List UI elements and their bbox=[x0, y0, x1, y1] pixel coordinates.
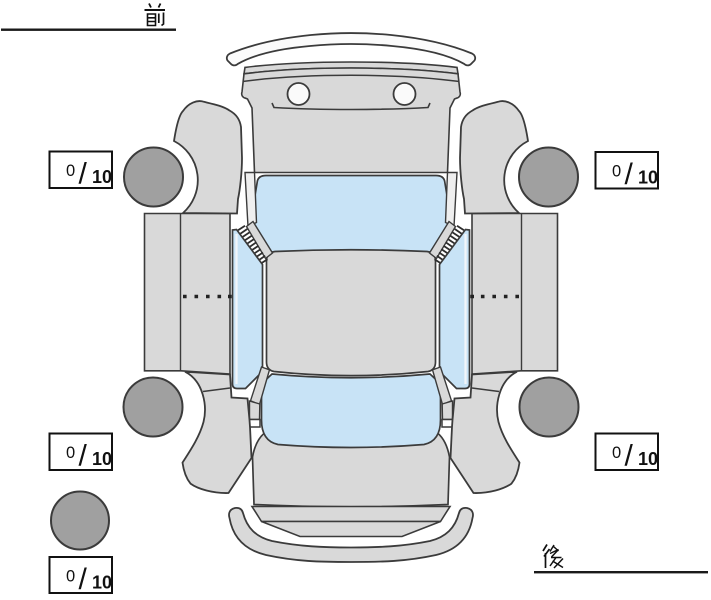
svg-text:10: 10 bbox=[638, 168, 658, 188]
svg-text:/: / bbox=[625, 440, 634, 473]
svg-text:0: 0 bbox=[66, 568, 75, 586]
svg-text:10: 10 bbox=[92, 167, 112, 187]
svg-text:/: / bbox=[625, 158, 634, 191]
svg-text:0: 0 bbox=[66, 444, 75, 462]
svg-text:/: / bbox=[79, 158, 88, 191]
svg-text:10: 10 bbox=[92, 449, 112, 469]
svg-text:0: 0 bbox=[612, 163, 621, 181]
svg-text:10: 10 bbox=[92, 573, 112, 593]
svg-text:/: / bbox=[79, 563, 88, 596]
svg-text:0: 0 bbox=[612, 444, 621, 462]
svg-text:10: 10 bbox=[638, 449, 658, 469]
svg-text:0: 0 bbox=[66, 162, 75, 180]
svg-text:/: / bbox=[79, 440, 88, 473]
